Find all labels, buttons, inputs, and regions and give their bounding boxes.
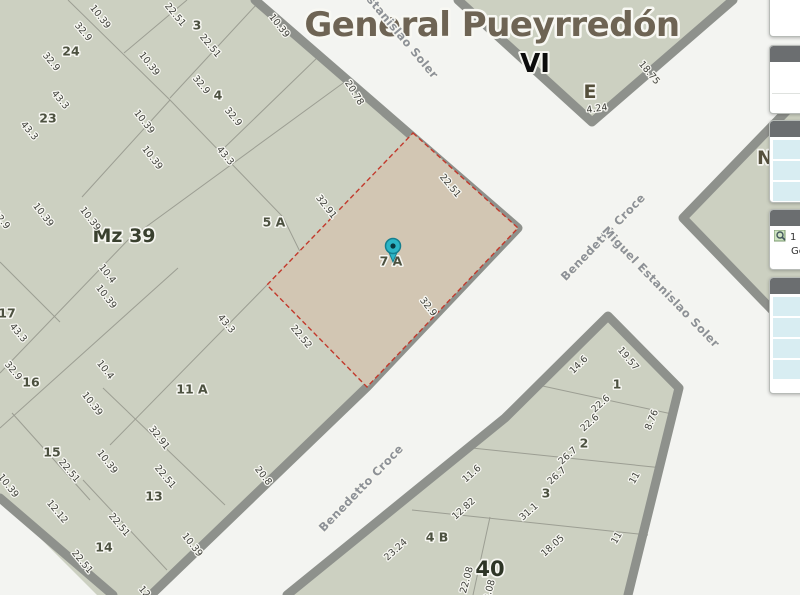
- parcel-number-label: 11 A: [176, 382, 208, 397]
- legend-row: [773, 360, 800, 379]
- map-tool-panel-2[interactable]: [769, 45, 800, 114]
- block-label: 40: [475, 557, 504, 581]
- parcel-number-label: 3: [542, 486, 551, 501]
- block-label: E: [584, 81, 597, 103]
- layer-info-line1: 1: [790, 232, 796, 243]
- layer-info-line2: Ge: [774, 245, 800, 259]
- parcel-number-label: 4 B: [426, 530, 449, 545]
- parcel-number-label: 3: [193, 18, 202, 33]
- map-zoom-icon: [774, 230, 787, 243]
- parcel-number-label: 17: [0, 306, 16, 321]
- cadastral-map-canvas[interactable]: General PueyrredónVIENMz 3940Estanislao …: [0, 0, 800, 595]
- map-viewport[interactable]: General PueyrredónVIENMz 3940Estanislao …: [0, 0, 800, 595]
- pin-dot: [390, 243, 395, 248]
- parcel-number-label: 16: [22, 375, 40, 390]
- legend-row: [773, 318, 800, 337]
- map-tool-panel-3[interactable]: [769, 120, 800, 203]
- parcel-number-label: 23: [39, 111, 56, 126]
- legend-row: [773, 297, 800, 316]
- block-label: Mz 39: [92, 225, 155, 247]
- map-tool-panel-4[interactable]: 1Ge: [769, 209, 800, 270]
- parcel-number-label: 15: [43, 445, 60, 460]
- legend-row: [773, 140, 800, 159]
- panel-header[interactable]: [770, 46, 800, 62]
- panel-header[interactable]: [770, 278, 800, 294]
- parcel-number-label: 2: [580, 436, 589, 451]
- parcel-number-label: 4: [214, 88, 223, 103]
- layer-info-text: 1Ge: [770, 226, 800, 259]
- legend-row: [773, 182, 800, 201]
- map-tool-panel-5[interactable]: [769, 277, 800, 394]
- legend-row: [773, 339, 800, 358]
- map-tool-panel-1[interactable]: [769, 0, 800, 37]
- panel-header[interactable]: [770, 210, 800, 226]
- block-label: VI: [520, 49, 550, 79]
- district-title: General Pueyrredón: [304, 5, 679, 45]
- panel-divider: [772, 93, 800, 94]
- parcel-number-label: 13: [145, 489, 162, 504]
- parcel-number-label: 1: [613, 377, 622, 392]
- parcel-number-label: 14: [95, 540, 113, 555]
- parcel-number-label: 5 A: [263, 215, 286, 230]
- parcel-number-label: 24: [62, 44, 80, 59]
- legend-row: [773, 161, 800, 180]
- panel-header[interactable]: [770, 121, 800, 137]
